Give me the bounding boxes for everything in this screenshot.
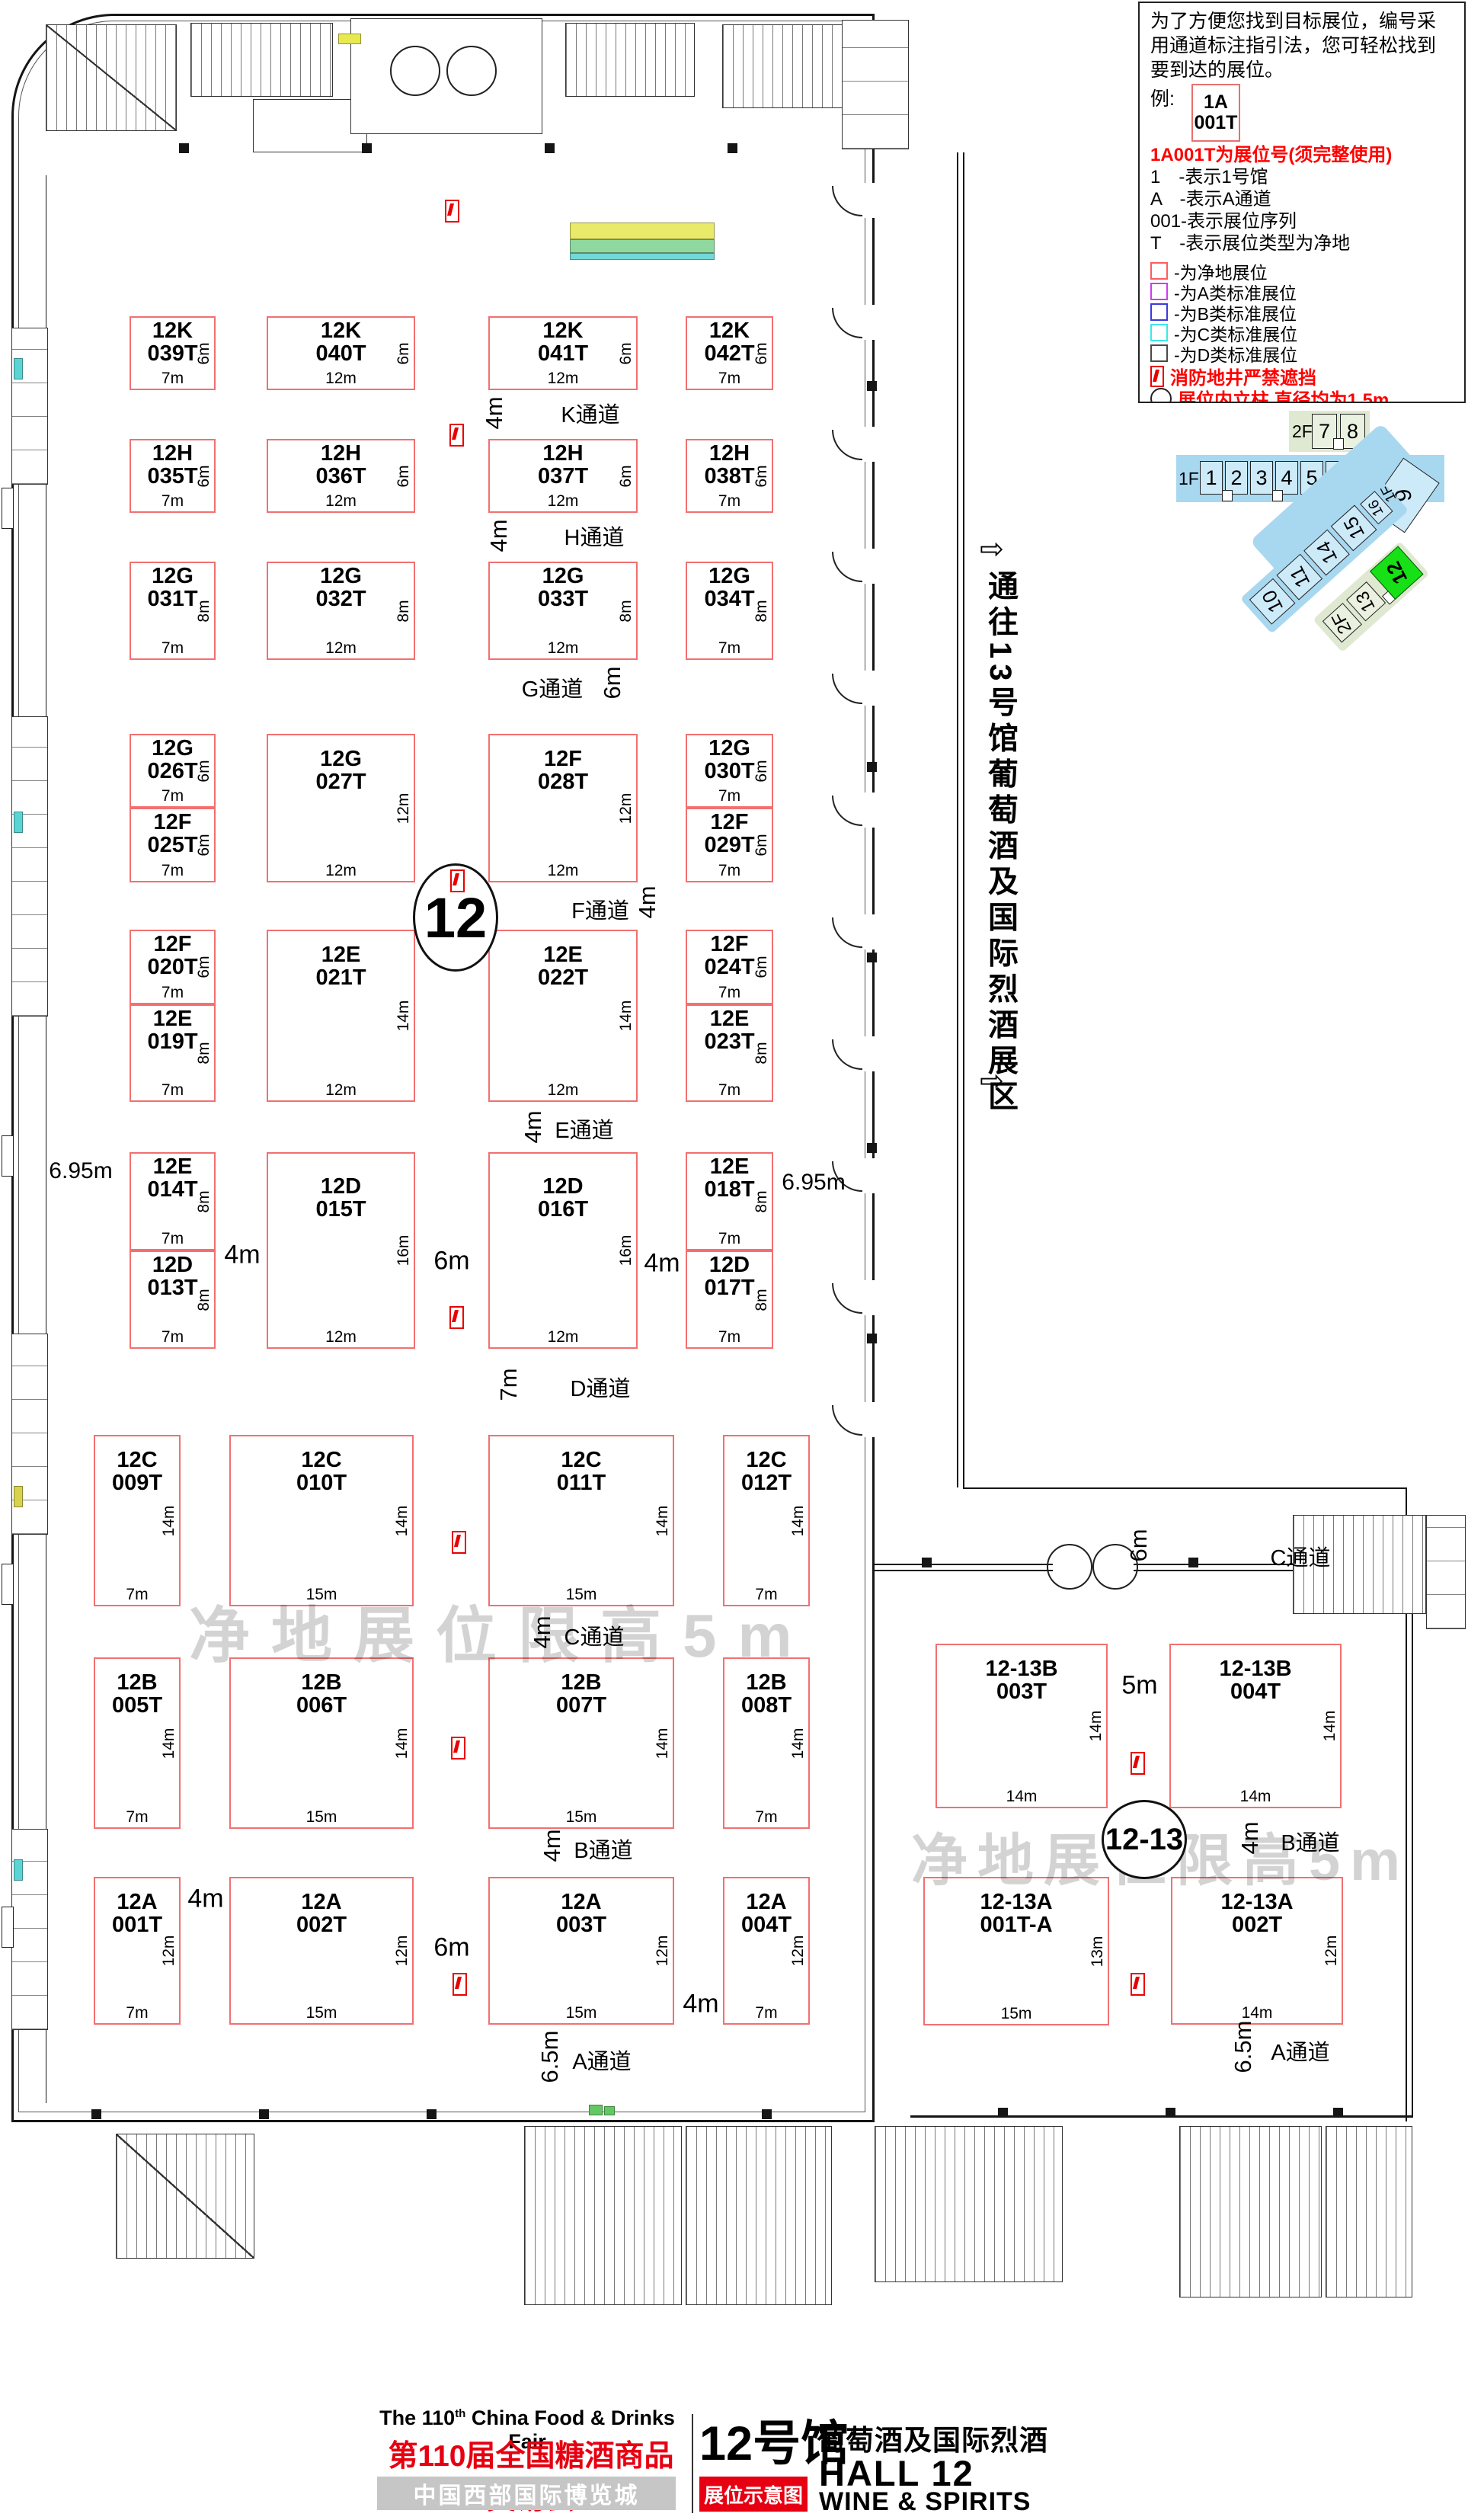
- legend-panel: 为了方便您找到目标展位，编号采 用通道标注指引法，您可轻松找到 要到达的展位。 …: [1138, 2, 1466, 403]
- legend-swatches: -为净地展位-为A类标准展位-为B类标准展位-为C类标准展位-为D类标准展位: [1150, 261, 1457, 363]
- aisle-label: H通道: [564, 520, 625, 552]
- swatch-color-icon: [1150, 303, 1168, 321]
- legend-swatch-row: -为D类标准展位: [1150, 343, 1457, 363]
- fire-hydrant-icon: [450, 869, 465, 892]
- legend-example-row: 例: 1A 001T: [1150, 84, 1457, 142]
- dimension-label: 4m: [520, 1110, 547, 1143]
- floor-plan-canvas: 净地展位限高5m 净地展位限高5m 12K 039T7m6m12K 040T12…: [0, 0, 1468, 2520]
- legend-example-booth: 1A 001T: [1191, 84, 1240, 142]
- aisle-label: G通道: [522, 671, 584, 703]
- fire-hydrant-icon: [452, 1531, 466, 1554]
- legend-example-prefix: 例:: [1150, 84, 1175, 111]
- legend-fire-row: 消防地井严禁遮挡: [1150, 365, 1457, 387]
- dimension-label: 6m: [1125, 1529, 1153, 1561]
- dimension-label: 4m: [683, 1990, 718, 2019]
- dimension-label: 6.5m: [1230, 2021, 1257, 2073]
- dimension-label: 6.5m: [536, 2031, 564, 2083]
- minimap-hall-label: 12: [1372, 548, 1422, 597]
- aisle-label: C通道: [1271, 1540, 1331, 1572]
- fire-hydrant-icon: [1150, 366, 1164, 387]
- aisle-label: E通道: [555, 1113, 613, 1145]
- swatch-color-icon: [1150, 283, 1168, 300]
- minimap-notch: [1222, 490, 1233, 501]
- dimension-label: 4m: [485, 519, 513, 552]
- legend-intro-line: 用通道标注指引法，您可轻松找到: [1150, 34, 1457, 58]
- dimension-label: 4m: [481, 396, 508, 429]
- fire-hydrant-icon: [449, 1306, 464, 1329]
- aisle-label: K通道: [561, 397, 619, 429]
- minimap-notch: [1333, 438, 1344, 450]
- legend-intro-line: 要到达的展位。: [1150, 58, 1457, 82]
- dimension-label: 6.95m: [49, 1158, 112, 1184]
- legend-column-note: 展位内立柱 直径均为1.5m: [1178, 385, 1389, 403]
- dimension-label: 5m: [1121, 1671, 1157, 1701]
- minimap-hall-1: 1: [1200, 461, 1223, 495]
- dimension-label: 6m: [433, 1247, 469, 1276]
- aisle-label: B通道: [574, 1833, 632, 1865]
- legend-column-row: 展位内立柱 直径均为1.5m: [1150, 387, 1457, 403]
- aisle-label: A通道: [1271, 2035, 1329, 2067]
- legend-intro-line: 为了方便您找到目标展位，编号采: [1150, 9, 1457, 34]
- fire-hydrant-icon: [1131, 1752, 1145, 1775]
- legend-code-line: 1 -表示1号馆: [1150, 166, 1457, 188]
- aisle-label: F通道: [571, 893, 629, 925]
- dimension-label: 6.95m: [782, 1170, 845, 1196]
- aisle-label: B通道: [1281, 1825, 1339, 1857]
- minimap-hall-3: 3: [1250, 461, 1273, 495]
- fire-hydrant-icon: [449, 424, 464, 447]
- aisle-label: C通道: [564, 1619, 625, 1651]
- dimension-label: 7m: [495, 1368, 523, 1401]
- dimension-label: 4m: [187, 1884, 223, 1914]
- minimap-notch: [1272, 490, 1283, 501]
- fire-hydrant-icon: [451, 1737, 465, 1760]
- dimension-label: 4m: [644, 1249, 680, 1279]
- venue-minimap: 2F781F123456910111415161F2F1312: [1172, 407, 1468, 663]
- dimension-label: 6m: [433, 1933, 469, 1963]
- legend-code-line: T -表示展位类型为净地: [1150, 232, 1457, 255]
- minimap-1f-label: 1F: [1179, 469, 1199, 489]
- swatch-color-icon: [1150, 262, 1168, 280]
- dimension-label: 4m: [224, 1241, 260, 1270]
- dimension-label: 4m: [634, 885, 661, 918]
- pillar-icon: [1150, 388, 1172, 404]
- minimap-hall-12-current: 12: [1370, 546, 1424, 600]
- dimension-label: 4m: [539, 1829, 566, 1862]
- aisle-label: A通道: [572, 2044, 631, 2076]
- dimension-label: 6m: [599, 666, 626, 699]
- legend-code-line: A -表示A通道: [1150, 188, 1457, 210]
- dimension-label: 4m: [529, 1615, 556, 1648]
- swatch-color-icon: [1150, 324, 1168, 341]
- fire-hydrant-icon: [445, 200, 459, 223]
- minimap-2f-label: 2F: [1292, 421, 1313, 442]
- legend-booth-number-note: 1A001T为展位号(须完整使用): [1150, 145, 1457, 166]
- fire-hydrant-icon: [1131, 1973, 1145, 1996]
- legend-code-line: 001-表示展位序列: [1150, 210, 1457, 232]
- fire-hydrant-icon: [453, 1973, 467, 1996]
- aisle-label: D通道: [571, 1371, 631, 1403]
- dimension-label: 4m: [1236, 1821, 1264, 1854]
- swatch-color-icon: [1150, 344, 1168, 362]
